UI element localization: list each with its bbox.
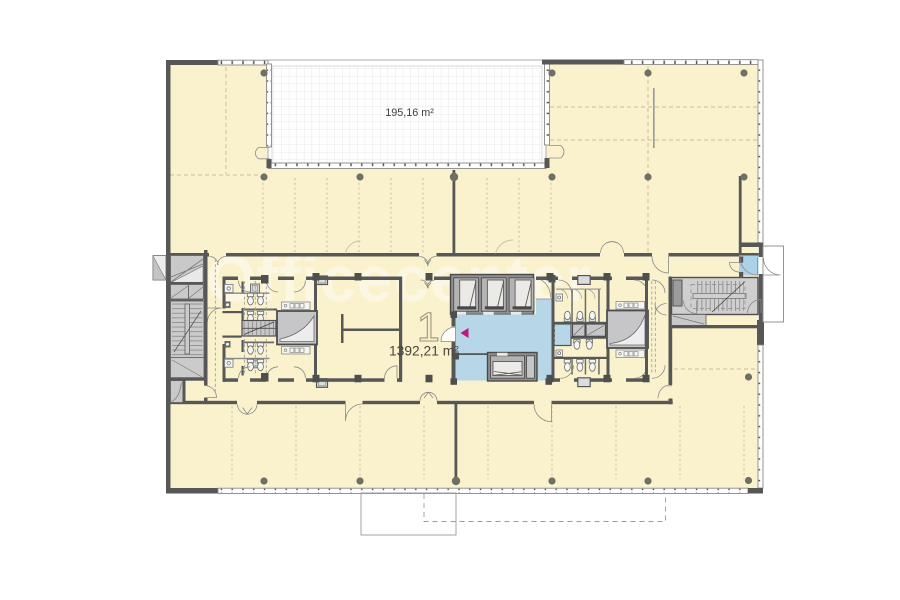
svg-text:1392,21 m²: 1392,21 m² [389,344,459,359]
svg-text:195,16 m²: 195,16 m² [385,107,434,119]
